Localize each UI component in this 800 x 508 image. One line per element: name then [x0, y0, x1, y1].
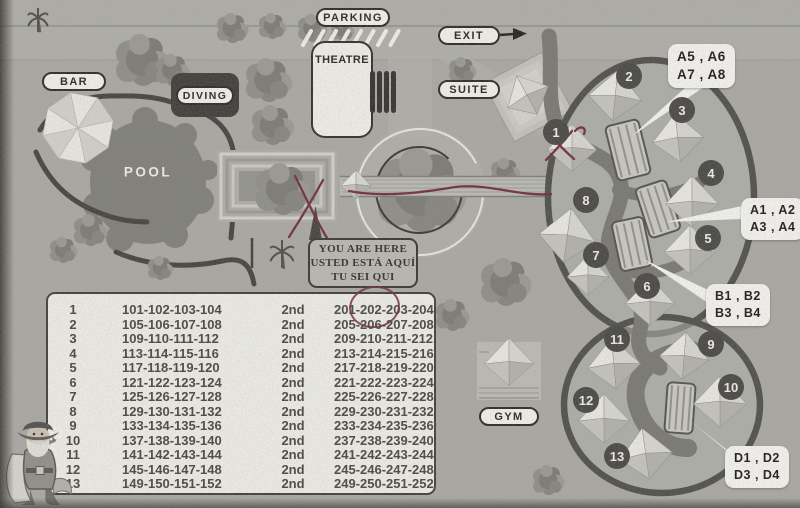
table-cell: 1: [48, 303, 98, 318]
table-cell: 5: [48, 361, 98, 376]
table-cell: 2nd: [262, 347, 324, 362]
pirate-mascot: [0, 412, 82, 508]
bar-label: BAR: [42, 72, 106, 91]
table-cell: 7: [48, 390, 98, 405]
table-cell: 2nd: [262, 434, 324, 449]
hut-number-1: 1: [543, 119, 569, 145]
table-cell: 241-242-243-244: [324, 448, 434, 463]
hut-number-5: 5: [695, 225, 721, 251]
table-cell: 129-130-131-132: [98, 405, 262, 420]
table-cell: 113-114-115-116: [98, 347, 262, 362]
table-row: 11141-142-143-1442nd241-242-243-244: [48, 448, 434, 463]
table-cell: 217-218-219-220: [324, 361, 434, 376]
theatre-stage-ribs: [370, 71, 396, 113]
hut-number-7: 7: [583, 242, 609, 268]
table-cell: 125-126-127-128: [98, 390, 262, 405]
hut-number-11: 11: [604, 326, 630, 352]
hut-number-2: 2: [616, 63, 642, 89]
exit-label: EXIT: [438, 26, 500, 45]
hut-number-13: 13: [604, 443, 630, 469]
table-cell: 209-210-211-212: [324, 332, 434, 347]
suite-label: SUITE: [438, 80, 500, 99]
table-row: 8129-130-131-1322nd229-230-231-232: [48, 405, 434, 420]
callout-line: B3 , B4: [715, 305, 761, 322]
hut-number-9: 9: [698, 331, 724, 357]
hut-number-4: 4: [698, 160, 724, 186]
mascot-mustache: [32, 440, 44, 444]
callout-line: A1 , A2: [750, 202, 795, 219]
callout-line: D1 , D2: [734, 450, 780, 467]
callout-line: D3 , D4: [734, 467, 780, 484]
table-row: 6121-122-123-1242nd221-222-223-224: [48, 376, 434, 391]
you-are-here-it: TU SEI QUI: [331, 270, 394, 284]
table-cell: 141-142-143-144: [98, 448, 262, 463]
table-cell: 2nd: [262, 448, 324, 463]
mascot-buckle: [36, 467, 44, 475]
table-cell: 133-134-135-136: [98, 419, 262, 434]
table-cell: 137-138-139-140: [98, 434, 262, 449]
table-cell: 2nd: [262, 303, 324, 318]
callout-b1-b4: B1 , B2 B3 , B4: [706, 284, 770, 326]
hut-number-8: 8: [573, 187, 599, 213]
callout-line: A5 , A6: [677, 48, 726, 66]
hut-number-10: 10: [718, 374, 744, 400]
theatre-building: THEATRE: [311, 41, 373, 138]
table-cell: 229-230-231-232: [324, 405, 434, 420]
table-cell: 4: [48, 347, 98, 362]
you-are-here-en: YOU ARE HERE: [319, 242, 408, 256]
table-row: 13149-150-151-1522nd249-250-251-252: [48, 477, 434, 492]
table-row: 3109-110-111-1122nd209-210-211-212: [48, 332, 434, 347]
table-cell: 6: [48, 376, 98, 391]
table-cell: 221-222-223-224: [324, 376, 434, 391]
table-cell: 117-118-119-120: [98, 361, 262, 376]
hut-number-12: 12: [573, 387, 599, 413]
table-row: 7125-126-127-1282nd225-226-227-228: [48, 390, 434, 405]
table-cell: 2nd: [262, 332, 324, 347]
table-row: 5117-118-119-1202nd217-218-219-220: [48, 361, 434, 376]
parking-label: PARKING: [316, 8, 390, 27]
callout-line: B1 , B2: [715, 288, 761, 305]
table-cell: 2: [48, 318, 98, 333]
callout-a5-a8: A5 , A6 A7 , A8: [668, 44, 735, 88]
table-row: 9133-134-135-1362nd233-234-235-236: [48, 419, 434, 434]
table-row: 12145-146-147-1482nd245-246-247-248: [48, 463, 434, 478]
table-cell: 109-110-111-112: [98, 332, 262, 347]
table-cell: 213-214-215-216: [324, 347, 434, 362]
table-row: 10137-138-139-1402nd237-238-239-240: [48, 434, 434, 449]
resort-map: BAR PARKING EXIT SUITE GYM DIVING THEATR…: [0, 0, 800, 508]
table-cell: 245-246-247-248: [324, 463, 434, 478]
table-cell: 233-234-235-236: [324, 419, 434, 434]
table-cell: 2nd: [262, 318, 324, 333]
table-cell: 225-226-227-228: [324, 390, 434, 405]
hut-number-6: 6: [634, 273, 660, 299]
room-block: [664, 382, 695, 434]
gym-label: GYM: [479, 407, 539, 426]
callout-line: A3 , A4: [750, 219, 795, 236]
diving-label: DIVING: [176, 86, 234, 105]
table-cell: 2nd: [262, 419, 324, 434]
pool-label: POOL: [124, 165, 172, 180]
table-cell: 105-106-107-108: [98, 318, 262, 333]
hut-number-3: 3: [669, 97, 695, 123]
you-are-here-box: YOU ARE HERE USTED ESTÁ AQUÍ TU SEI QUI: [308, 238, 418, 288]
you-are-here-es: USTED ESTÁ AQUÍ: [310, 256, 415, 270]
table-cell: 2nd: [262, 376, 324, 391]
table-cell: 149-150-151-152: [98, 477, 262, 492]
mascot-eye: [41, 433, 44, 436]
table-cell: 2nd: [262, 390, 324, 405]
table-cell: 121-122-123-124: [98, 376, 262, 391]
table-cell: 2nd: [262, 463, 324, 478]
table-cell: 2nd: [262, 405, 324, 420]
callout-d1-d4: D1 , D2 D3 , D4: [725, 446, 789, 488]
table-cell: 101-102-103-104: [98, 303, 262, 318]
mascot-eye: [33, 433, 36, 436]
callout-a1-a4: A1 , A2 A3 , A4: [741, 198, 800, 240]
table-cell: 249-250-251-252: [324, 477, 434, 492]
table-cell: 2nd: [262, 477, 324, 492]
table-cell: 237-238-239-240: [324, 434, 434, 449]
table-cell: 2nd: [262, 361, 324, 376]
callout-line: A7 , A8: [677, 66, 726, 84]
table-cell: 145-146-147-148: [98, 463, 262, 478]
room-table-body: 1101-102-103-1042nd201-202-203-2042105-1…: [48, 303, 434, 492]
table-row: 4113-114-115-1162nd213-214-215-216: [48, 347, 434, 362]
table-cell: 3: [48, 332, 98, 347]
